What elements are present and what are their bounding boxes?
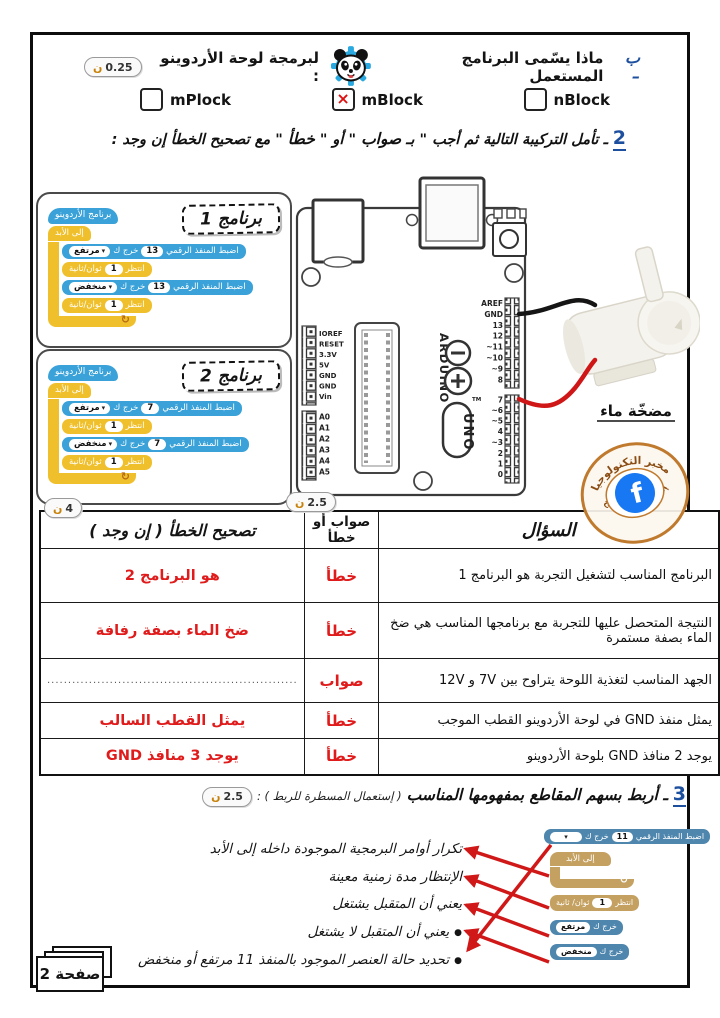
option-label: nBlock (554, 91, 610, 109)
svg-text:~10: ~10 (486, 354, 503, 363)
pin-number-oval: 7 (141, 403, 159, 414)
pin-number-oval: 13 (141, 246, 163, 257)
answer-cell: خطأ (304, 549, 379, 603)
option-label: mBlock (362, 91, 423, 109)
chevron-down-icon: ▾ (564, 833, 568, 841)
program-1-blocks: برنامج الأردوينو إلى الأبد اضبط المنفذ ا… (48, 208, 253, 327)
matching-item: الإنتظار مدة زمنية معينة (60, 864, 462, 892)
svg-text:IOREF: IOREF (319, 330, 343, 338)
power-jack (313, 200, 363, 262)
question-2-heading: 2 ـ تأمل التركيبة التالية ثم أجب " بـ صو… (66, 128, 626, 151)
answer-cell: صواب (304, 659, 379, 703)
correction-cell-empty: ........................................… (40, 659, 304, 703)
svg-text:RESET: RESET (319, 341, 344, 349)
forever-arm (48, 399, 59, 473)
score-badge-qb: 0.25ن (84, 57, 142, 77)
svg-text:~3: ~3 (491, 438, 503, 447)
question-cell: النتيجة المتحصل عليها للتجربة مع برنامجه… (379, 603, 719, 659)
svg-text:3.3V: 3.3V (319, 351, 337, 359)
loop-arrow-icon: ↻ (121, 313, 130, 326)
chevron-down-icon: ▾ (109, 283, 113, 292)
svg-text:A3: A3 (319, 446, 330, 455)
svg-text:~6: ~6 (491, 406, 503, 415)
option-mblock[interactable]: × mBlock (332, 88, 423, 111)
svg-text:2: 2 (498, 449, 503, 458)
x-mark-icon: × (336, 91, 349, 107)
question-cell: يمثل منفذ GND في لوحة الأردوينو القطب ال… (379, 703, 719, 739)
svg-text:~9: ~9 (491, 365, 503, 374)
chevron-down-icon: ▾ (102, 404, 106, 413)
value-dropdown: ▾مرتفع (69, 246, 110, 257)
table-row: يمثل منفذ GND في لوحة الأردوينو القطب ال… (40, 703, 719, 739)
program-1-box: برنامج 1 برنامج الأردوينو إلى الأبد اضبط… (36, 192, 292, 348)
wait-block: انتظر 1 ثوان/ثانية (62, 419, 152, 434)
correction-cell: يمثل القطب السالب (40, 703, 304, 739)
worksheet-page: ب – ماذا يسّمى البرنامج المستعمل لبرمجة … (0, 0, 720, 1018)
digital-pin-header-top (505, 298, 519, 388)
forever-block: إلى الأبد اضبط المنفذ الرقمي 7 خرج ك ▾مر… (48, 383, 249, 484)
forever-label: إلى الأبد (48, 226, 91, 241)
answer-cell: خطأ (304, 739, 379, 775)
forever-foot: ↻ (550, 879, 634, 888)
question-b-prefix: ب – (611, 48, 640, 86)
svg-text:A5: A5 (319, 468, 330, 477)
arduino-board-diagram: ARDUINO TM UNO IOREFRESET 3.3V5V GNDGND … (292, 175, 542, 507)
set-pin-block: اضبط المنفذ الرقمي 13 خرج ك ▾منخفض (62, 280, 253, 295)
svg-text:13: 13 (493, 321, 503, 330)
checkbox-mblock-checked[interactable]: × (332, 88, 355, 111)
matching-item: تكرار أوامر البرمجية الموجودة داخله إلى … (60, 836, 462, 864)
answer-cell: خطأ (304, 703, 379, 739)
table-row: النتيجة المتحصل عليها للتجربة مع برنامجه… (40, 603, 719, 659)
matching-item: يعني أن المتقبل يشتغل (60, 891, 462, 919)
question-2-text: ـ تأمل التركيبة التالية ثم أجب " بـ (406, 132, 608, 148)
answer-options-row: mPlock × mBlock nBlock (140, 88, 610, 111)
question-3-number: 3 (673, 784, 686, 807)
loop-arrow-icon: ↻ (620, 875, 628, 886)
power-pin-header (302, 326, 316, 405)
output-low-block: خرج ك منخفض (550, 944, 629, 959)
question-3-hint: ( إستعمال المسطرة للربط ) : (257, 789, 402, 803)
digital-pin-header-bottom (505, 395, 519, 483)
forever-arm (48, 242, 59, 316)
header-correction: تصحيح الخطأ ( إن وجد ) (40, 511, 304, 549)
header-answer: صواب أو خطأ (304, 511, 379, 549)
svg-text:0: 0 (498, 470, 503, 479)
forever-label: إلى الأبد (550, 852, 611, 866)
svg-text:~11: ~11 (486, 343, 503, 352)
mount-hole (505, 264, 523, 282)
facebook-lab-stamp: مخبر التكنولوجيا إعدادية أولاد صالح f (578, 436, 693, 551)
svg-text:7: 7 (498, 396, 503, 405)
score-badge-answer-col: 2.5ن (286, 492, 336, 512)
question-cell: الجهد المناسب لتغذية اللوحة يتراوح بين 7… (379, 659, 719, 703)
forever-block: إلى الأبد ↻ (550, 852, 694, 888)
question-cell: البرنامج المناسب لتشغيل التجربة هو البرن… (379, 549, 719, 603)
option-label: mPlock (170, 91, 231, 109)
page-number-label: صفحة 2 (36, 956, 104, 992)
wait-block: انتظر 1 ثوان/ثانية (62, 298, 152, 313)
wait-block: انتظر 1 ثوان/ ثانية (550, 895, 639, 910)
pin-number-oval: 11 (612, 832, 633, 842)
checkbox-mplock[interactable] (140, 88, 163, 111)
wait-block: انتظر 1 ثوان/ثانية (62, 455, 152, 470)
program-2-box: برنامج 2 برنامج الأردوينو إلى الأبد اضبط… (36, 349, 292, 505)
question-3-heading: 3 ـ أربط بسهم المقاطع بمفهومها المناسب (… (130, 784, 686, 807)
loop-arrow-icon: ↻ (121, 470, 130, 483)
pin-number-oval: 7 (148, 439, 166, 450)
question-b-text-after: لبرمجة لوحة الأردوينو : (150, 49, 319, 85)
svg-text:A1: A1 (319, 424, 330, 433)
svg-text:1: 1 (498, 460, 503, 469)
correction-cell: يوجد 3 منافذ GND (40, 739, 304, 775)
arduino-hat-block: برنامج الأردوينو (48, 208, 118, 224)
question-2-text: " مع تصحيح الخطأ إن وجد : (112, 132, 283, 148)
uno-model-text: UNO (460, 413, 475, 452)
option-nblock[interactable]: nBlock (524, 88, 610, 111)
score-badge-q3: 2.5ن (202, 787, 252, 807)
chevron-down-icon: ▾ (102, 247, 106, 256)
svg-text:4: 4 (498, 427, 503, 436)
forever-block: إلى الأبد اضبط المنفذ الرقمي 13 خرج ك ▾م… (48, 226, 253, 327)
mount-hole (414, 472, 432, 490)
svg-text:GND: GND (319, 383, 337, 391)
correction-cell: ضخ الماء بصفة رفافة (40, 603, 304, 659)
question-2-number: 2 (613, 128, 626, 151)
svg-text:AREF: AREF (481, 299, 503, 308)
chevron-down-icon: ▾ (109, 440, 113, 449)
value-dropdown: ▾منخفض (69, 282, 117, 293)
set-pin-block: اضبط المنفذ الرقمي 13 خرج ك ▾مرتفع (62, 244, 246, 259)
question-b-text-before: ماذا يسّمى البرنامج المستعمل (383, 49, 604, 85)
value-dropdown: ▾منخفض (69, 439, 117, 450)
empty-dropdown: ▾ (550, 832, 582, 842)
forever-foot: ↻ (48, 473, 136, 484)
svg-text:8: 8 (498, 376, 503, 385)
set-pin-block: اضبط المنفذ الرقمي 7 خرج ك ▾مرتفع (62, 401, 242, 416)
correction-cell: هو البرنامج 2 (40, 549, 304, 603)
svg-text:5V: 5V (319, 362, 330, 370)
set-pin-block: اضبط المنفذ الرقمي 7 خرج ك ▾منخفض (62, 437, 249, 452)
svg-text:GND: GND (319, 372, 337, 380)
score-badge-correction-col: 4ن (44, 498, 82, 518)
svg-text:~5: ~5 (491, 417, 503, 426)
arduino-hat-block: برنامج الأردوينو (48, 365, 118, 381)
question-3-blocks: اضبط المنفذ الرقمي 11 خرج ك ▾ إلى الأبد … (544, 829, 694, 960)
option-mplock[interactable]: mPlock (140, 88, 231, 111)
table-row: البرنامج المناسب لتشغيل التجربة هو البرن… (40, 549, 719, 603)
svg-text:A2: A2 (319, 435, 330, 444)
analog-pin-header (302, 411, 316, 480)
page-number-badge: صفحة 2 (36, 946, 122, 998)
value-dropdown: ▾مرتفع (69, 403, 110, 414)
mount-hole (302, 268, 320, 286)
question-cell: يوجد 2 منافذ GND بلوحة الأردوينو (379, 739, 719, 775)
svg-text:A4: A4 (319, 457, 330, 466)
mblock-panda-logo-icon (327, 44, 375, 88)
program-2-blocks: برنامج الأردوينو إلى الأبد اضبط المنفذ ا… (48, 365, 249, 484)
pin-number-oval: 13 (148, 282, 170, 293)
forever-foot: ↻ (48, 316, 136, 327)
question-2-word-true: صواب (361, 130, 401, 148)
question-b-line: ب – ماذا يسّمى البرنامج المستعمل لبرمجة … (84, 46, 640, 88)
wait-block: انتظر 1 ثوان/ثانية (62, 262, 152, 277)
table-row: الجهد المناسب لتغذية اللوحة يتراوح بين 7… (40, 659, 719, 703)
svg-text:Vin: Vin (319, 393, 332, 401)
output-high-block: خرج ك مرتفع (550, 920, 623, 935)
svg-text:GND: GND (484, 310, 503, 319)
svg-text:A0: A0 (319, 413, 330, 422)
forever-label: إلى الأبد (48, 383, 91, 398)
bullet-dot-icon: ● (454, 956, 462, 966)
question-3-text: ـ أربط بسهم المقاطع بمفهومها المناسب (407, 786, 668, 804)
question-2-text: " أو " (320, 132, 356, 148)
checkbox-nblock[interactable] (524, 88, 547, 111)
answer-cell: خطأ (304, 603, 379, 659)
svg-text:12: 12 (493, 332, 503, 341)
set-pin-block: اضبط المنفذ الرقمي 11 خرج ك ▾ (544, 829, 710, 844)
table-row: يوجد 2 منافذ GND بلوحة الأردوينو خطأ يوج… (40, 739, 719, 775)
tm-text: TM (472, 397, 481, 403)
question-2-word-false: خطأ (288, 130, 315, 148)
bullet-dot-icon: ● (454, 928, 462, 938)
matching-item: ●يعني أن المتقبل لا يشتغل (60, 919, 462, 948)
